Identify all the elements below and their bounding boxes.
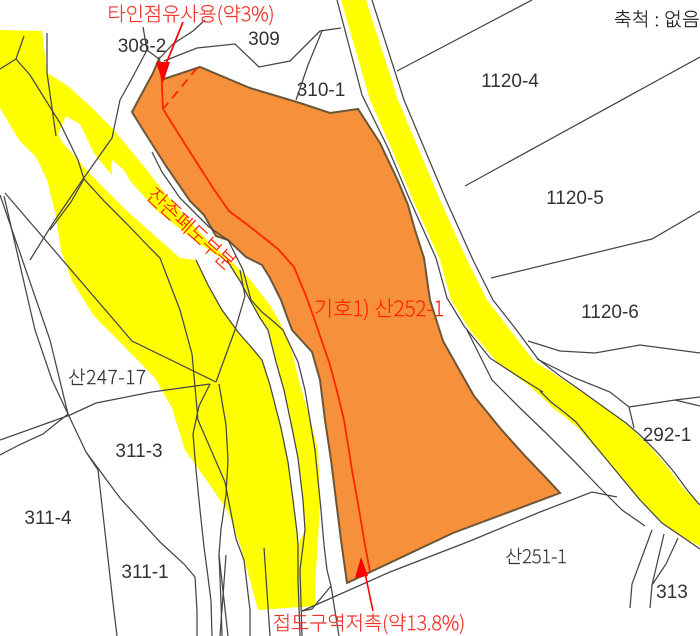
svg-text:313: 313 <box>656 582 688 603</box>
svg-text:308-2: 308-2 <box>118 36 167 57</box>
svg-text:1120-5: 1120-5 <box>546 188 604 209</box>
svg-text:292-1: 292-1 <box>643 425 692 446</box>
svg-text:311-3: 311-3 <box>115 441 162 462</box>
svg-text:1120-4: 1120-4 <box>481 71 539 92</box>
svg-text:1120-6: 1120-6 <box>581 302 639 323</box>
svg-text:311-1: 311-1 <box>121 562 168 583</box>
svg-text:309: 309 <box>248 29 280 50</box>
svg-text:311-4: 311-4 <box>24 508 72 529</box>
svg-text:310-1: 310-1 <box>297 80 346 101</box>
